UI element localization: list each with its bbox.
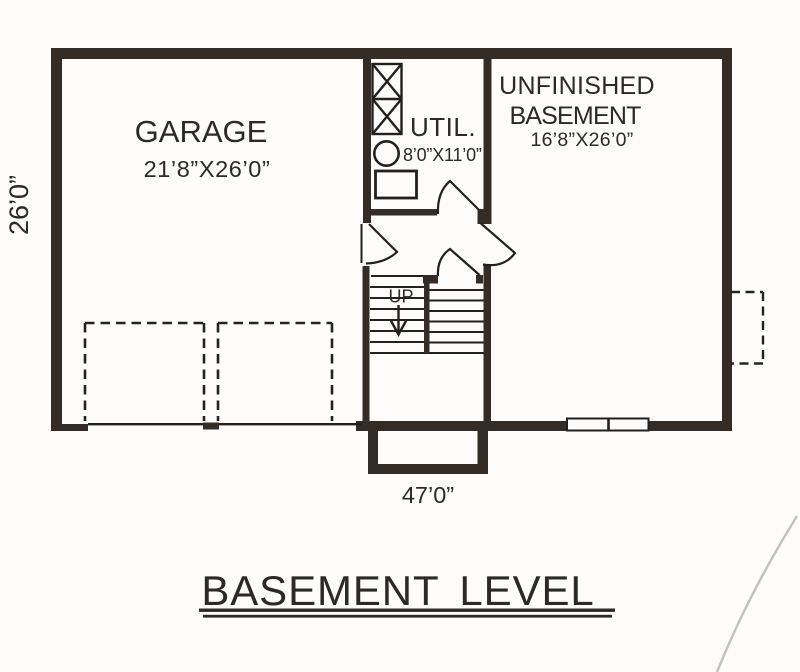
svg-text:26’0”: 26’0”: [4, 175, 34, 235]
svg-text:GARAGE: GARAGE: [135, 114, 268, 149]
svg-text:BASEMENT: BASEMENT: [509, 102, 641, 130]
svg-text:BASEMENT LEVEL: BASEMENT LEVEL: [201, 567, 594, 614]
svg-text:UTIL.: UTIL.: [410, 112, 476, 142]
svg-text:UP: UP: [389, 287, 414, 307]
svg-text:8’0”X11’0”: 8’0”X11’0”: [403, 145, 482, 165]
svg-text:47’0”: 47’0”: [402, 482, 454, 508]
svg-text:16’8”X26’0”: 16’8”X26’0”: [530, 129, 633, 151]
svg-text:UNFINISHED: UNFINISHED: [499, 72, 655, 100]
svg-text:21’8”X26’0”: 21’8”X26’0”: [144, 156, 271, 182]
